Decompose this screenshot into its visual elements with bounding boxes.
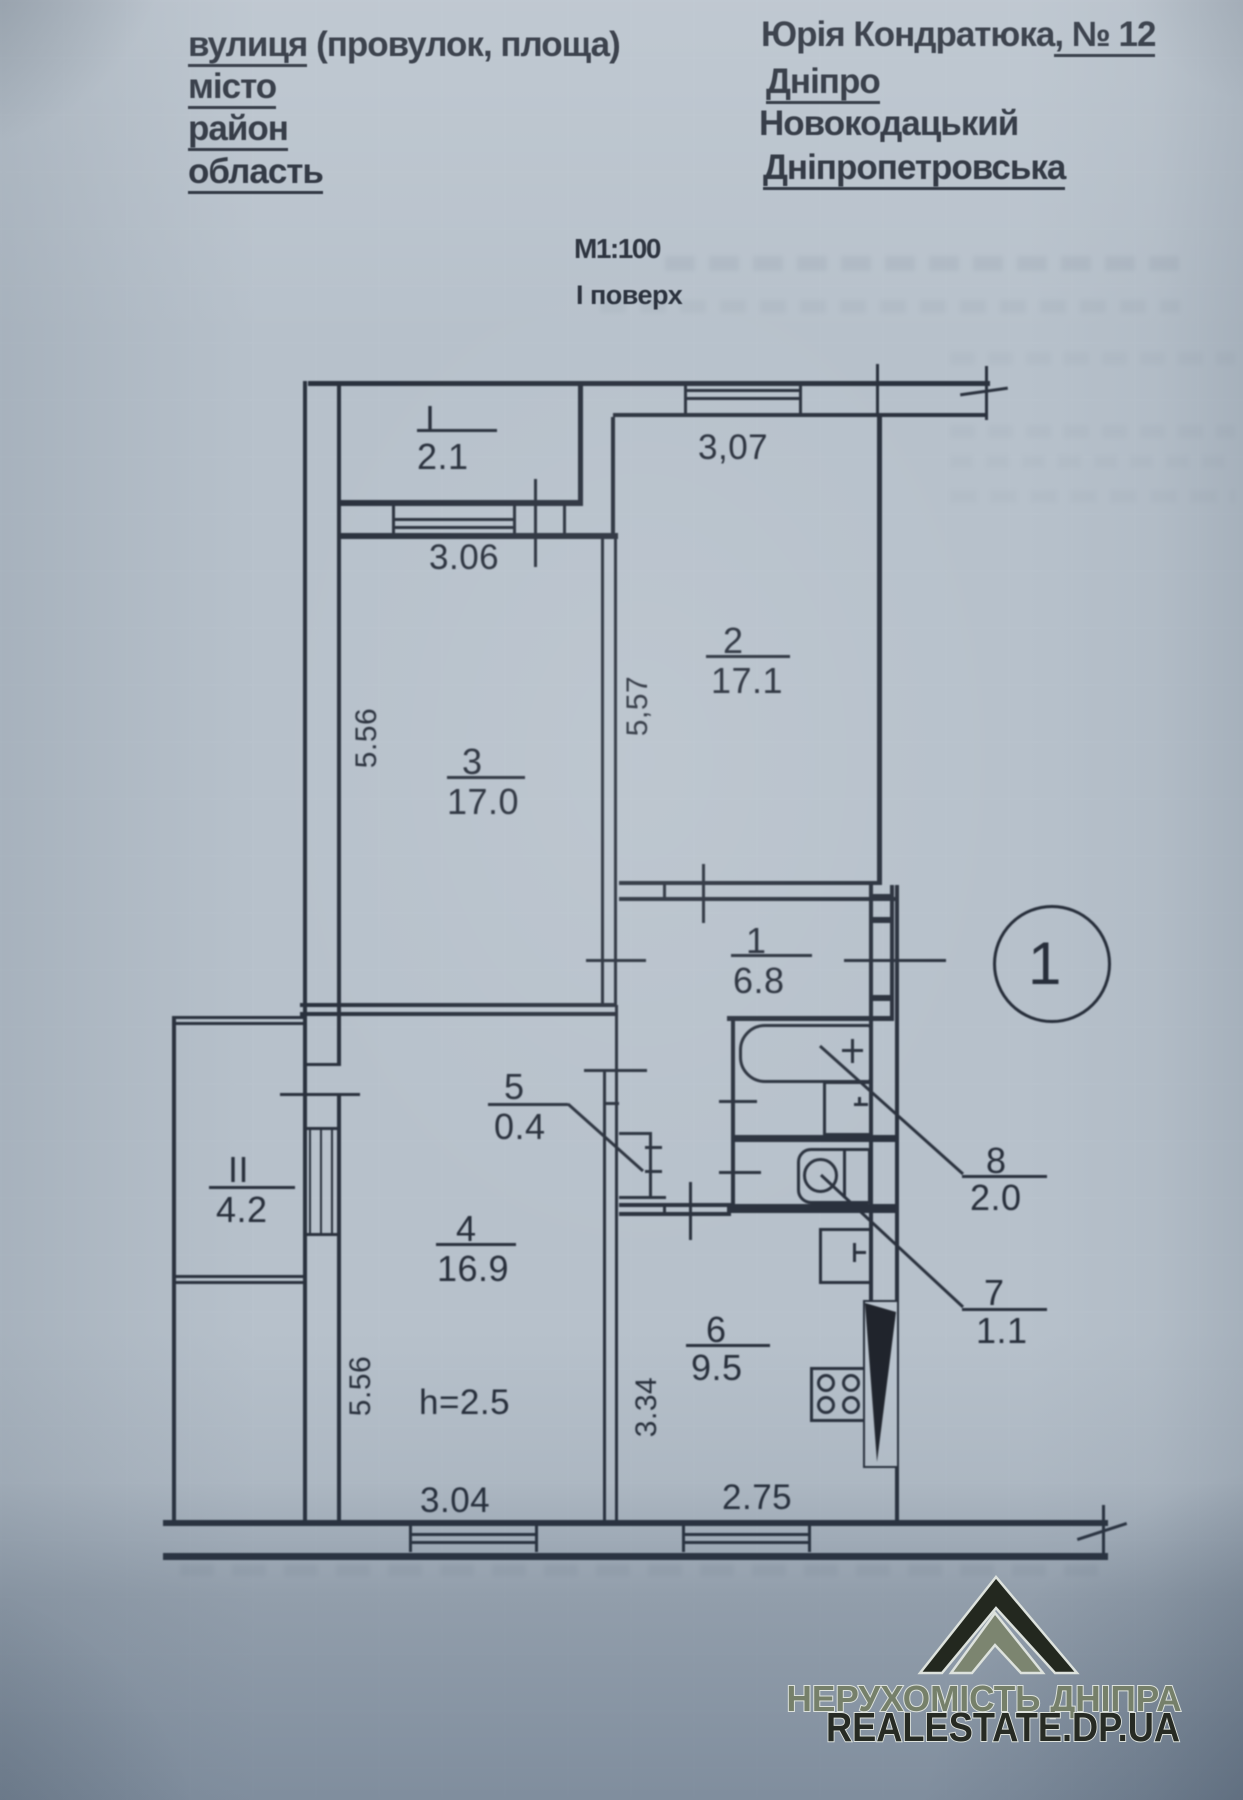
svg-text:REALESTATE.DP.UA: REALESTATE.DP.UA [826,1704,1180,1750]
